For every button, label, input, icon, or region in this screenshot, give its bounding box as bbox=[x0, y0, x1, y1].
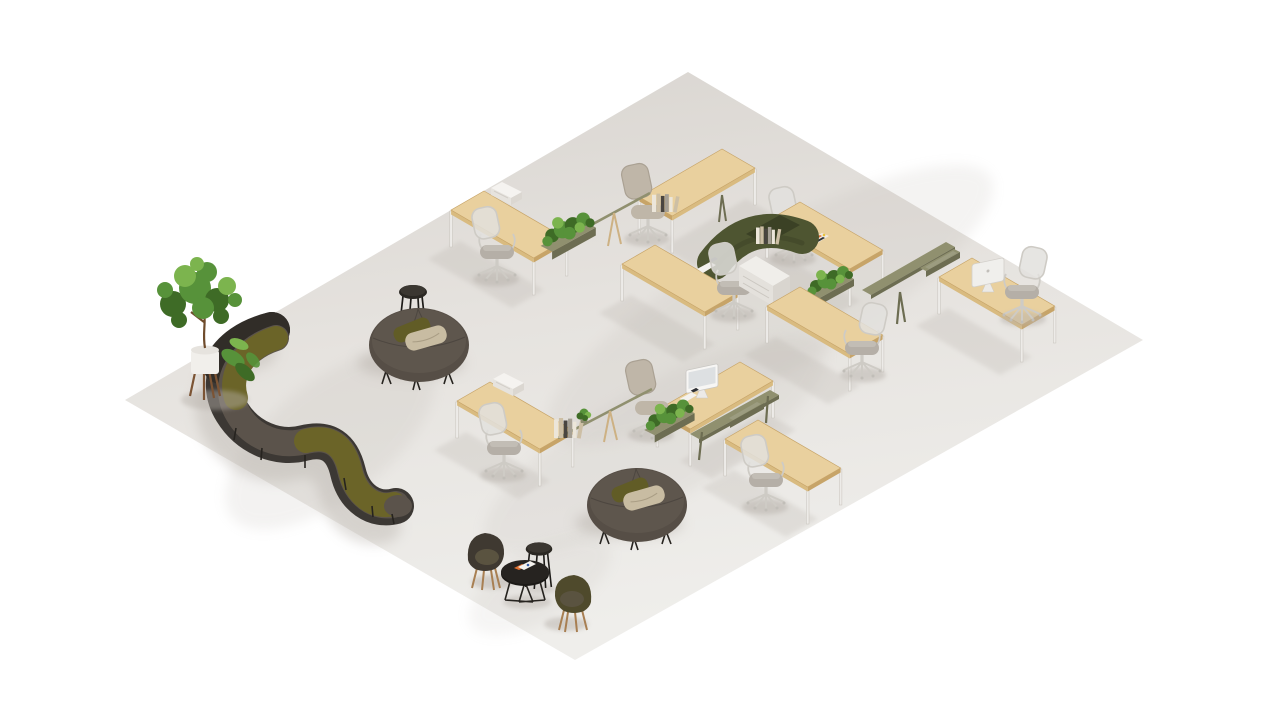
isometric-office-scene: Isometric 3D render of an open-plan offi… bbox=[0, 0, 1280, 720]
sofa-end-cushion bbox=[384, 495, 412, 517]
office-floorplan-render: Isometric 3D render of an open-plan offi… bbox=[0, 0, 1280, 720]
tree-canopy bbox=[157, 257, 242, 328]
